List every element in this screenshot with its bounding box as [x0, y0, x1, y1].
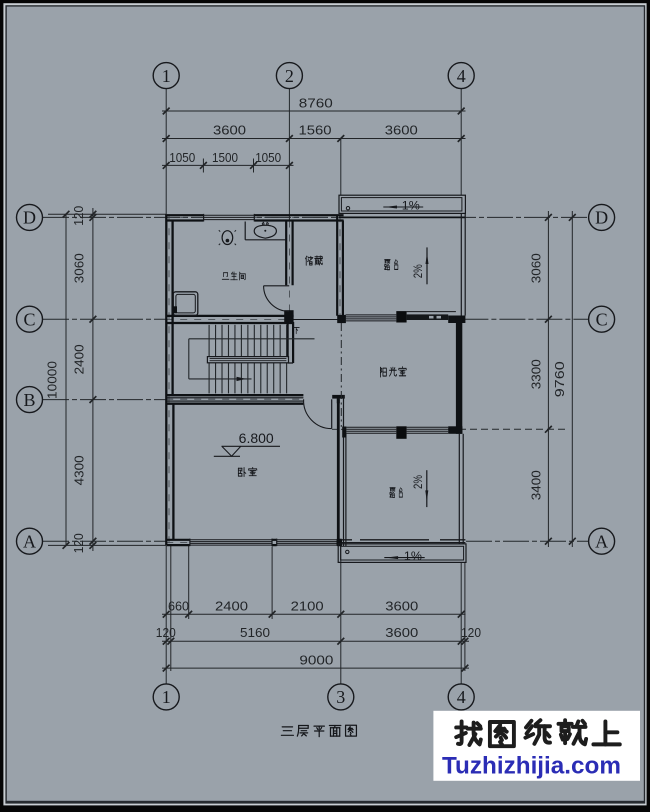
svg-text:1050: 1050 — [169, 151, 195, 165]
svg-text:3400: 3400 — [529, 470, 544, 500]
svg-text:D: D — [595, 208, 608, 228]
svg-text:3060: 3060 — [529, 253, 544, 283]
svg-text:120: 120 — [72, 533, 86, 553]
svg-text:B: B — [23, 390, 35, 410]
svg-text:3300: 3300 — [529, 359, 544, 389]
svg-text:4300: 4300 — [71, 455, 86, 485]
svg-text:120: 120 — [156, 626, 176, 640]
svg-text:8760: 8760 — [299, 95, 333, 110]
svg-text:9760: 9760 — [552, 361, 567, 397]
svg-text:A: A — [595, 531, 608, 551]
svg-text:3600: 3600 — [385, 599, 418, 614]
svg-text:A: A — [23, 531, 36, 551]
svg-text:10000: 10000 — [45, 361, 60, 399]
svg-text:9000: 9000 — [299, 652, 333, 667]
svg-text:3060: 3060 — [71, 253, 86, 283]
svg-text:120: 120 — [72, 206, 86, 226]
svg-text:C: C — [23, 309, 35, 329]
svg-text:C: C — [596, 309, 608, 329]
svg-text:1500: 1500 — [212, 151, 238, 165]
svg-text:D: D — [23, 208, 36, 228]
svg-text:1050: 1050 — [255, 151, 281, 165]
svg-text:3600: 3600 — [213, 123, 246, 138]
svg-text:1560: 1560 — [299, 123, 332, 138]
svg-text:2: 2 — [285, 66, 294, 86]
svg-text:2400: 2400 — [71, 344, 86, 374]
svg-text:2400: 2400 — [215, 599, 248, 614]
svg-text:2100: 2100 — [291, 599, 324, 614]
svg-text:1: 1 — [162, 687, 171, 707]
svg-text:3: 3 — [336, 687, 345, 707]
svg-text:4: 4 — [457, 66, 466, 86]
svg-text:3600: 3600 — [385, 625, 418, 640]
svg-text:6.800: 6.800 — [239, 431, 274, 446]
svg-text:2%: 2% — [413, 475, 425, 489]
svg-text:2%: 2% — [413, 264, 425, 278]
svg-text:Tuzhizhijia.com: Tuzhizhijia.com — [442, 753, 621, 780]
svg-text:1%: 1% — [404, 551, 422, 563]
svg-text:1%: 1% — [402, 200, 420, 212]
svg-text:120: 120 — [461, 626, 481, 640]
svg-text:3600: 3600 — [385, 123, 418, 138]
svg-text:1: 1 — [162, 66, 171, 86]
svg-text:4: 4 — [457, 687, 466, 707]
svg-text:5160: 5160 — [240, 625, 270, 640]
